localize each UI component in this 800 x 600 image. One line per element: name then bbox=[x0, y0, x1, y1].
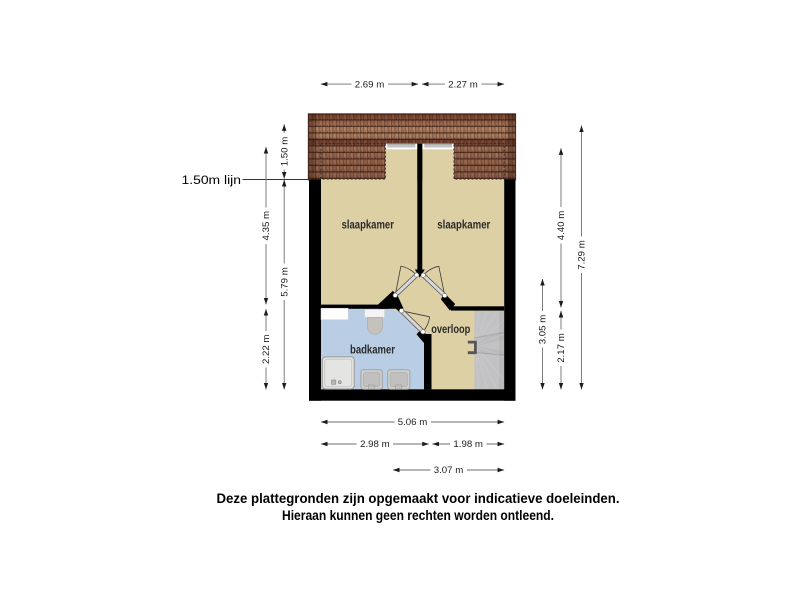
svg-text:2.17 m: 2.17 m bbox=[556, 333, 566, 363]
svg-text:5.06 m: 5.06 m bbox=[398, 417, 428, 427]
svg-text:2.69 m: 2.69 m bbox=[355, 79, 385, 89]
svg-text:slaapkamer: slaapkamer bbox=[342, 220, 395, 232]
svg-text:1.50m lijn: 1.50m lijn bbox=[182, 175, 242, 187]
svg-text:4.35 m: 4.35 m bbox=[261, 211, 271, 241]
svg-text:1.50 m: 1.50 m bbox=[279, 136, 289, 166]
svg-text:5.79 m: 5.79 m bbox=[279, 267, 289, 297]
svg-text:2.22 m: 2.22 m bbox=[261, 334, 271, 364]
svg-text:7.29 m: 7.29 m bbox=[577, 240, 587, 270]
svg-text:Deze plattegronden zijn opgema: Deze plattegronden zijn opgemaakt voor i… bbox=[217, 491, 620, 506]
svg-text:Hieraan kunnen geen rechten wo: Hieraan kunnen geen rechten worden ontle… bbox=[282, 508, 554, 523]
svg-text:overloop: overloop bbox=[431, 324, 470, 336]
svg-text:2.98 m: 2.98 m bbox=[360, 439, 390, 449]
svg-text:3.05 m: 3.05 m bbox=[538, 314, 548, 344]
svg-text:2.27 m: 2.27 m bbox=[448, 79, 478, 89]
svg-text:3.07 m: 3.07 m bbox=[434, 465, 464, 475]
svg-text:slaapkamer: slaapkamer bbox=[437, 220, 490, 232]
svg-text:4.40 m: 4.40 m bbox=[556, 210, 566, 240]
svg-text:1.98 m: 1.98 m bbox=[453, 439, 483, 449]
svg-text:badkamer: badkamer bbox=[350, 344, 395, 356]
